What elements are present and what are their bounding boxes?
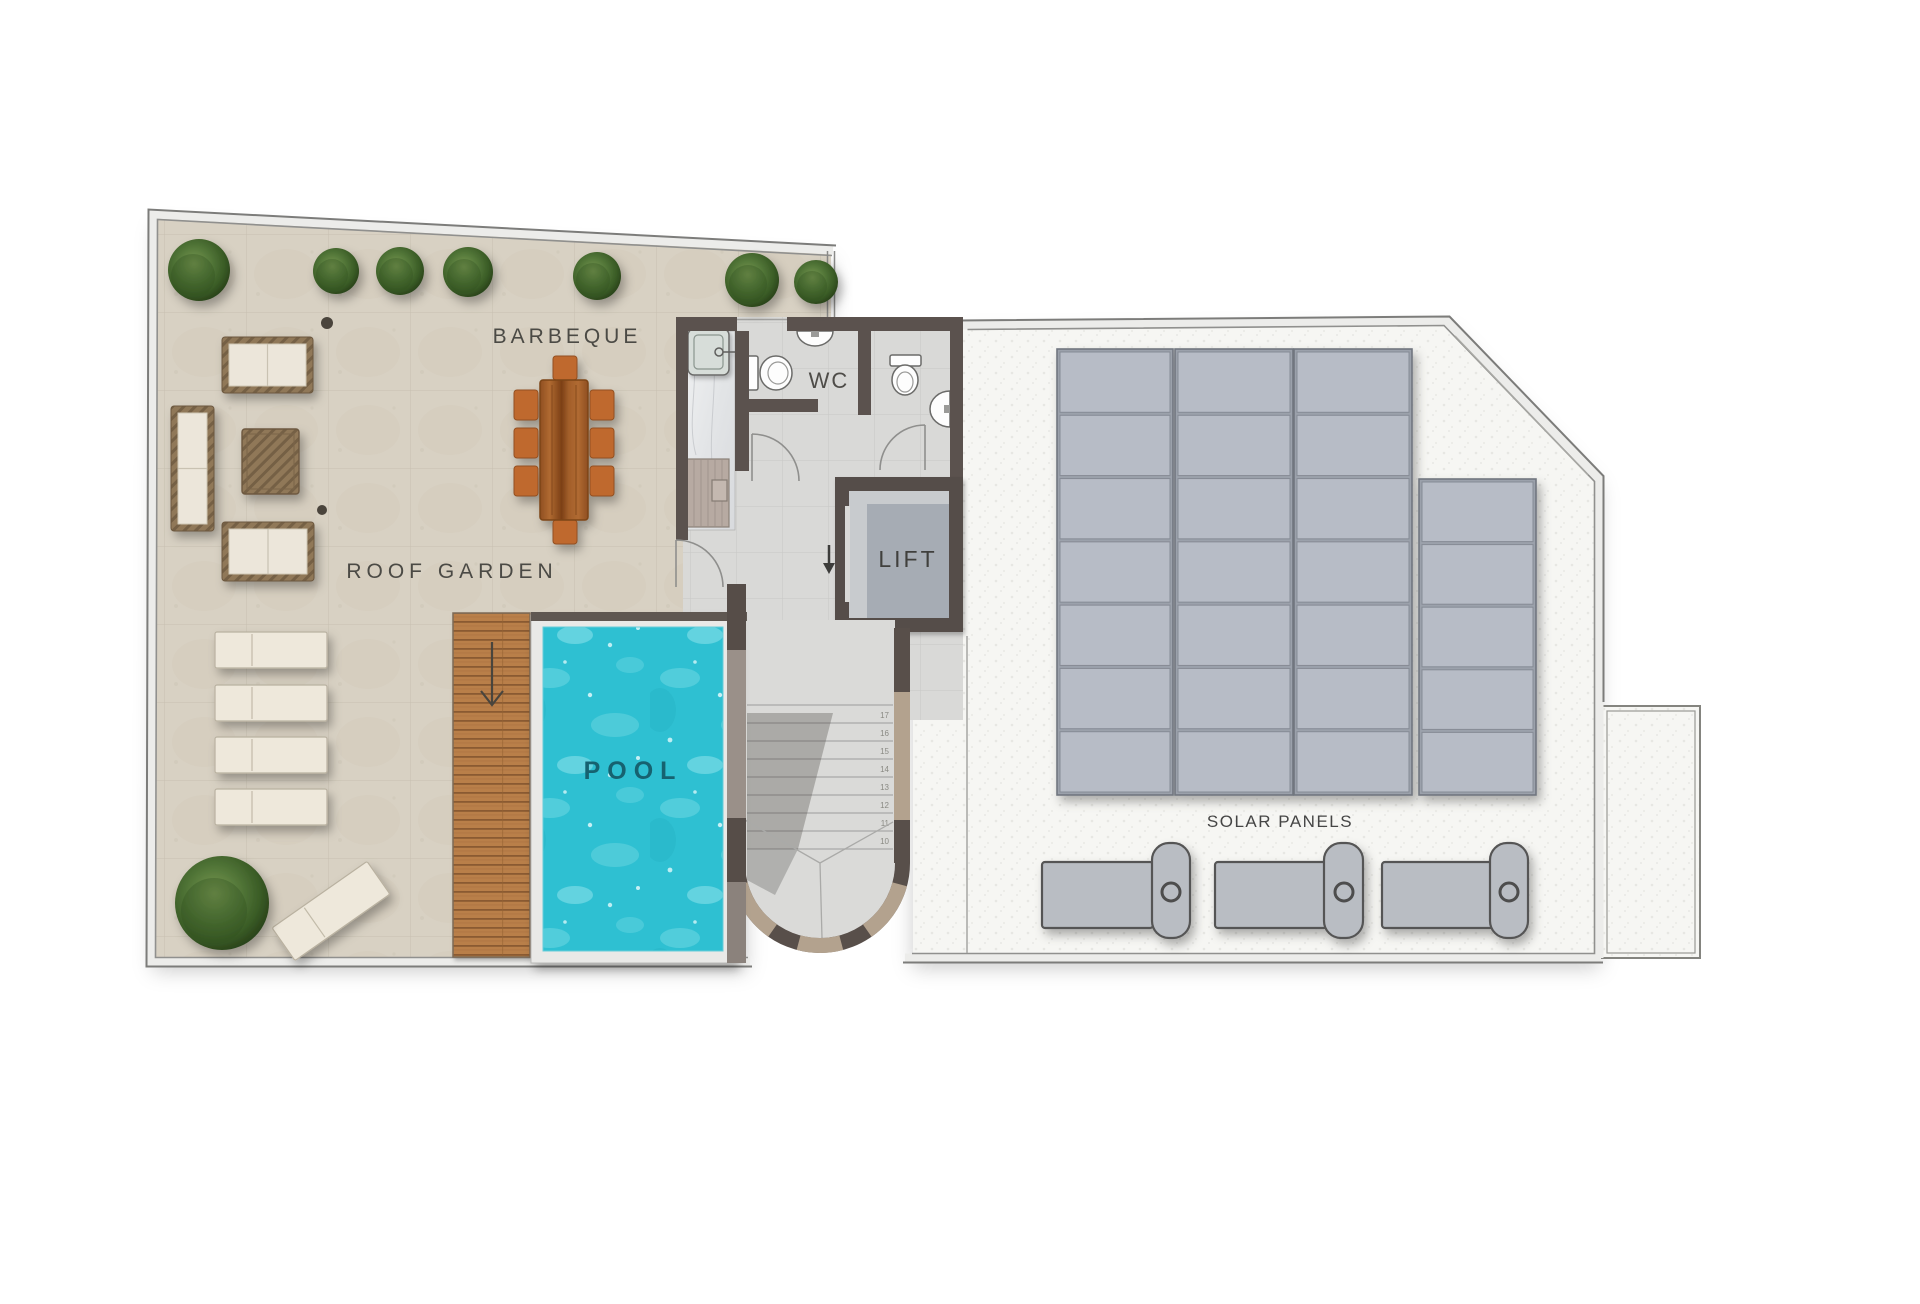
solar-panel [1297,415,1409,475]
solar-panel [1060,415,1170,475]
toilet-icon [892,365,918,395]
solar-panel [1178,415,1290,475]
solar-panel [1422,607,1533,667]
floor-drain-dot [321,317,333,329]
floor-drain-dot [317,505,327,515]
solar-panels-label: SOLAR PANELS [1207,812,1353,831]
solar-panel [1297,479,1409,539]
solar-panel [1060,605,1170,665]
pool-area: POOL [453,584,747,963]
shower-deck [687,459,729,527]
chair [553,356,577,380]
tree-icon [573,252,621,300]
fan-icon [1335,883,1353,901]
sun-lounger [215,737,327,773]
pool-top-wall [531,612,747,621]
floor-plan-page: WC LIFT 1716151413121110 [0,0,1920,1304]
pool-right-wall [727,584,746,963]
coffee-table [242,429,299,494]
shower-tray [688,329,735,375]
step-number: 10 [880,837,889,846]
pool: POOL [531,615,735,963]
lift-label: LIFT [878,546,937,572]
solar-panel [1178,732,1290,792]
wood-deck [453,613,530,957]
chair [514,428,538,458]
stair-wall-right-window [894,692,910,820]
sofa [222,337,313,393]
fan-icon [1162,883,1180,901]
solar-panel [1060,352,1170,412]
tree-icon [794,260,838,304]
solar-panel [1060,732,1170,792]
sun-lounger [215,789,327,825]
solar-panel [1297,352,1409,412]
roof-bumpout [1602,706,1700,958]
sofa [171,406,214,531]
lift-door [845,506,850,602]
roof-garden-label: ROOF GARDEN [346,560,557,583]
sun-lounger [215,685,327,721]
solar-panel [1178,605,1290,665]
chair [590,390,614,420]
solar-panel [1422,545,1533,605]
fan-icon [1500,883,1518,901]
pool-label: POOL [584,757,683,785]
step-number: 12 [880,801,889,810]
pool-water [543,627,723,951]
roof-floor-plan: WC LIFT 1716151413121110 [0,0,1920,1304]
sun-lounger [215,632,327,668]
tree-icon [443,247,493,297]
solar-panel [1178,542,1290,602]
tree-icon [376,247,424,295]
step-number: 13 [880,783,889,792]
dining-table [540,380,588,520]
step-number: 16 [880,729,889,738]
solar-panel [1060,479,1170,539]
solar-panel [1422,482,1533,542]
stairwell: 1716151413121110 [729,618,910,946]
solar-panel [1297,542,1409,602]
step-number: 14 [880,765,889,774]
solar-panel [1297,605,1409,665]
toilet-icon [760,356,792,390]
solar-panel [1297,732,1409,792]
step-number: 17 [880,711,889,720]
tree-icon [725,253,779,307]
solar-panel [1060,668,1170,728]
chair [590,428,614,458]
step-number: 15 [880,747,889,756]
chair [590,466,614,496]
tree-icon [168,239,230,301]
solar-panel [1178,479,1290,539]
solar-panel [1178,352,1290,412]
chair [514,466,538,496]
barbeque-label: BARBEQUE [493,325,642,348]
tree-icon [175,856,269,950]
solar-panel [1178,668,1290,728]
chair [514,390,538,420]
sofa [222,522,314,581]
solar-panel [1422,732,1533,792]
lift: LIFT [835,477,963,632]
solar-panel [1422,670,1533,730]
wc-label: WC [809,368,850,393]
solar-panel [1297,668,1409,728]
tree-icon [313,248,359,294]
solar-panel [1060,542,1170,602]
chair [553,520,577,544]
